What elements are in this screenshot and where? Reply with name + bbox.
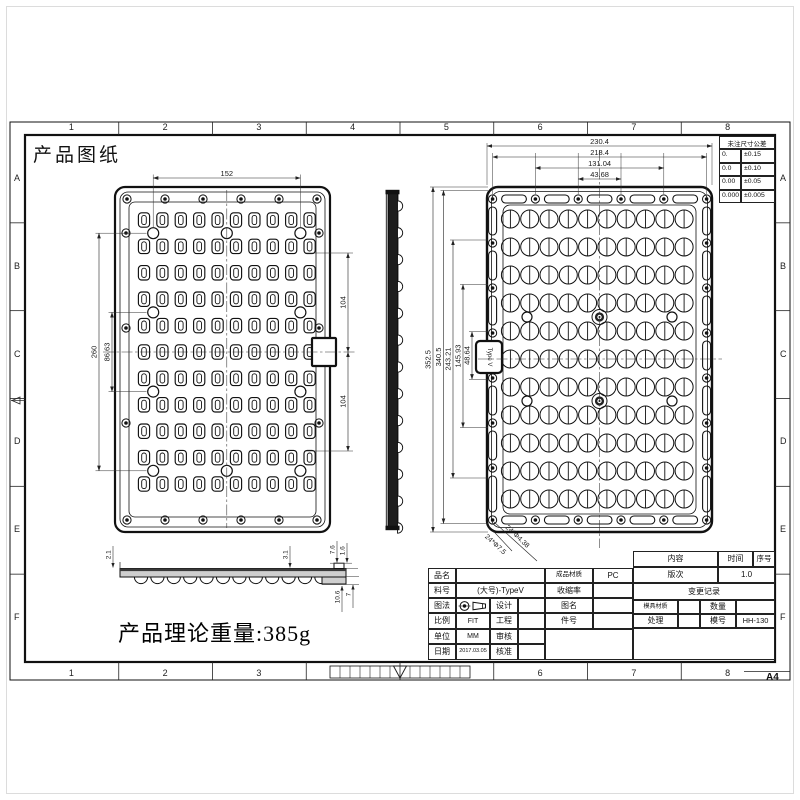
- title-block-projection-label: 图法: [428, 598, 456, 613]
- dimension-label: 86.63: [103, 343, 112, 362]
- title-block-content-label: 内容: [633, 551, 718, 567]
- view-side: [386, 190, 403, 533]
- zone-row-label: D: [780, 436, 787, 447]
- tolerance-table: 未注尺寸公差 0.±0.150.0±0.100.00±0.050.000±0.0…: [719, 136, 775, 203]
- zone-col-label: 1: [69, 668, 74, 679]
- dimension-label: 3.1: [283, 550, 290, 559]
- dimensions-right-view: 230.4218.4131.0443.68352.5340.5243.21145…: [424, 137, 713, 561]
- dimension-label: 243.21: [444, 348, 453, 371]
- title-block-empty-cell: [593, 613, 633, 629]
- first-angle-projection-icon: [458, 600, 488, 612]
- zone-col-label: 8: [725, 668, 730, 679]
- title-block-material-label: 成品材质: [545, 568, 593, 583]
- dimension-label: 104: [339, 296, 348, 309]
- dimension-label: 230.4: [590, 137, 609, 146]
- dimension-label: 43.68: [590, 170, 609, 179]
- zone-col-label: 5: [444, 122, 449, 133]
- dimension-label: 1.6: [340, 546, 347, 555]
- title-block-material: PC: [593, 568, 633, 583]
- zone-row-label: F: [14, 612, 20, 623]
- view-left: [103, 187, 356, 532]
- zone-col-label: 2: [163, 122, 168, 133]
- tolerance-value-cell: ±0.10: [741, 163, 775, 177]
- title-block-engineer-label: 工程: [490, 613, 518, 629]
- title-block-mold-material-label: 模具材质: [633, 600, 678, 614]
- paper-size-label: A4: [766, 672, 779, 683]
- zone-row-label: E: [14, 524, 20, 535]
- dimension-label: 145.93: [454, 345, 463, 368]
- title-block-review-label: 审核: [490, 629, 518, 644]
- title-block-unit: MM: [456, 629, 490, 644]
- dimension-label: 24*Φ4.38: [504, 524, 531, 549]
- zone-col-label: 2: [163, 668, 168, 679]
- zone-col-label: 3: [256, 122, 261, 133]
- zone-row-label: C: [14, 349, 21, 360]
- title-block-mold-no: HH-130: [736, 614, 775, 628]
- title-block-empty-cell: [518, 613, 545, 629]
- title-block-part-no-label: 料号: [428, 583, 456, 598]
- zone-row-label: D: [14, 436, 21, 447]
- title-block-qty-label: 数量: [700, 600, 736, 614]
- title-block-empty-cell: [736, 600, 775, 614]
- dimension-label: 10.6: [335, 590, 342, 603]
- tolerance-digits-cell: 0.000: [719, 190, 741, 204]
- zone-row-label: B: [780, 261, 786, 272]
- dimension-label: 352.5: [424, 350, 433, 369]
- title-block-empty-cell: [593, 583, 633, 598]
- dimension-label: 7: [346, 592, 353, 596]
- title-block-empty-cell: [678, 614, 700, 628]
- zone-col-label: 4: [350, 122, 355, 133]
- zone-col-label: 7: [631, 668, 636, 679]
- tolerance-value-cell: ±0.05: [741, 176, 775, 190]
- zone-row-label: E: [780, 524, 786, 535]
- dimension-label: Type V: [486, 348, 492, 367]
- zone-col-label: 3: [256, 668, 261, 679]
- title-block-approve-label: 核准: [490, 644, 518, 660]
- title-block-mold-no-label: 模号: [700, 614, 736, 628]
- projection-method-cell: [456, 598, 490, 613]
- drawing-canvas: 15226086.63104104Type V230.4218.4131.044…: [0, 0, 800, 800]
- title-block-date: 2017.03.05: [456, 644, 490, 660]
- dimension-label: 152: [221, 169, 234, 178]
- zone-row-label: A: [14, 173, 20, 184]
- title-block-empty-cell: [456, 568, 545, 583]
- dimension-label: 340.5: [434, 348, 443, 367]
- tolerance-table-header: 未注尺寸公差: [719, 136, 775, 149]
- title-block-empty-cell: [518, 629, 545, 644]
- dimension-label: 7.6: [330, 545, 337, 554]
- view-profile: [120, 562, 346, 584]
- tolerance-value-cell: ±0.15: [741, 149, 775, 163]
- title-block-empty-cell: [593, 598, 633, 613]
- title-block-change-record-label: 变更记录: [633, 583, 775, 600]
- title-block-date-label: 日期: [428, 644, 456, 660]
- title-block-revision-label: 版次: [633, 567, 718, 583]
- weight-note: 产品理论重量:385g: [118, 616, 311, 648]
- zone-row-label: F: [780, 612, 786, 623]
- title-block-treatment-label: 处理: [633, 614, 678, 628]
- title-block-shrinkage-label: 收缩率: [545, 583, 593, 598]
- tolerance-value-cell: ±0.005: [741, 190, 775, 204]
- title-block-seq-label: 序号: [753, 551, 775, 567]
- tolerance-digits-cell: 0.0: [719, 163, 741, 177]
- dimension-label: 260: [90, 346, 99, 359]
- dimension-label: 2.1: [106, 550, 113, 559]
- page-title: 产品图纸: [33, 140, 121, 167]
- title-block-empty-cell: [518, 598, 545, 613]
- view-right: Type V: [476, 150, 722, 548]
- title-block-unit-label: 单位: [428, 629, 456, 644]
- engineering-drawing: 15226086.63104104Type V230.4218.4131.044…: [0, 0, 800, 800]
- tolerance-digits-cell: 0.: [719, 149, 741, 163]
- zone-col-label: 8: [725, 122, 730, 133]
- dimension-label: 48.64: [463, 346, 472, 365]
- title-block-scale-label: 比例: [428, 613, 456, 629]
- zone-row-label: C: [780, 349, 787, 360]
- dimension-label: 104: [339, 395, 348, 408]
- tolerance-digits-cell: 0.00: [719, 176, 741, 190]
- dimension-label: 24*Φ7.5: [483, 534, 507, 557]
- title-block-part-no: (大号)-TypeV: [456, 583, 545, 598]
- title-block-empty-cell: [678, 600, 700, 614]
- dimension-label: 218.4: [590, 148, 609, 157]
- dimension-label: 131.04: [588, 159, 611, 168]
- title-block-scale: FIT: [456, 613, 490, 629]
- zone-col-label: 6: [538, 122, 543, 133]
- title-block-part-name-label: 品名: [428, 568, 456, 583]
- zone-row-label: B: [14, 261, 20, 272]
- zone-row-label: A: [780, 173, 786, 184]
- title-block-time-label: 时间: [718, 551, 753, 567]
- title-block-revision: 1.0: [718, 567, 775, 583]
- title-block-empty-cell: [633, 628, 775, 660]
- title-block-design-label: 设计: [490, 598, 518, 613]
- zone-col-label: 7: [631, 122, 636, 133]
- zone-col-label: 1: [69, 122, 74, 133]
- title-block-drawing-name-label: 图名: [545, 598, 593, 613]
- title-block-empty-cell: [518, 644, 545, 660]
- title-block-part-id-label: 件号: [545, 613, 593, 629]
- title-block-empty-cell: [545, 629, 633, 660]
- zone-col-label: 6: [538, 668, 543, 679]
